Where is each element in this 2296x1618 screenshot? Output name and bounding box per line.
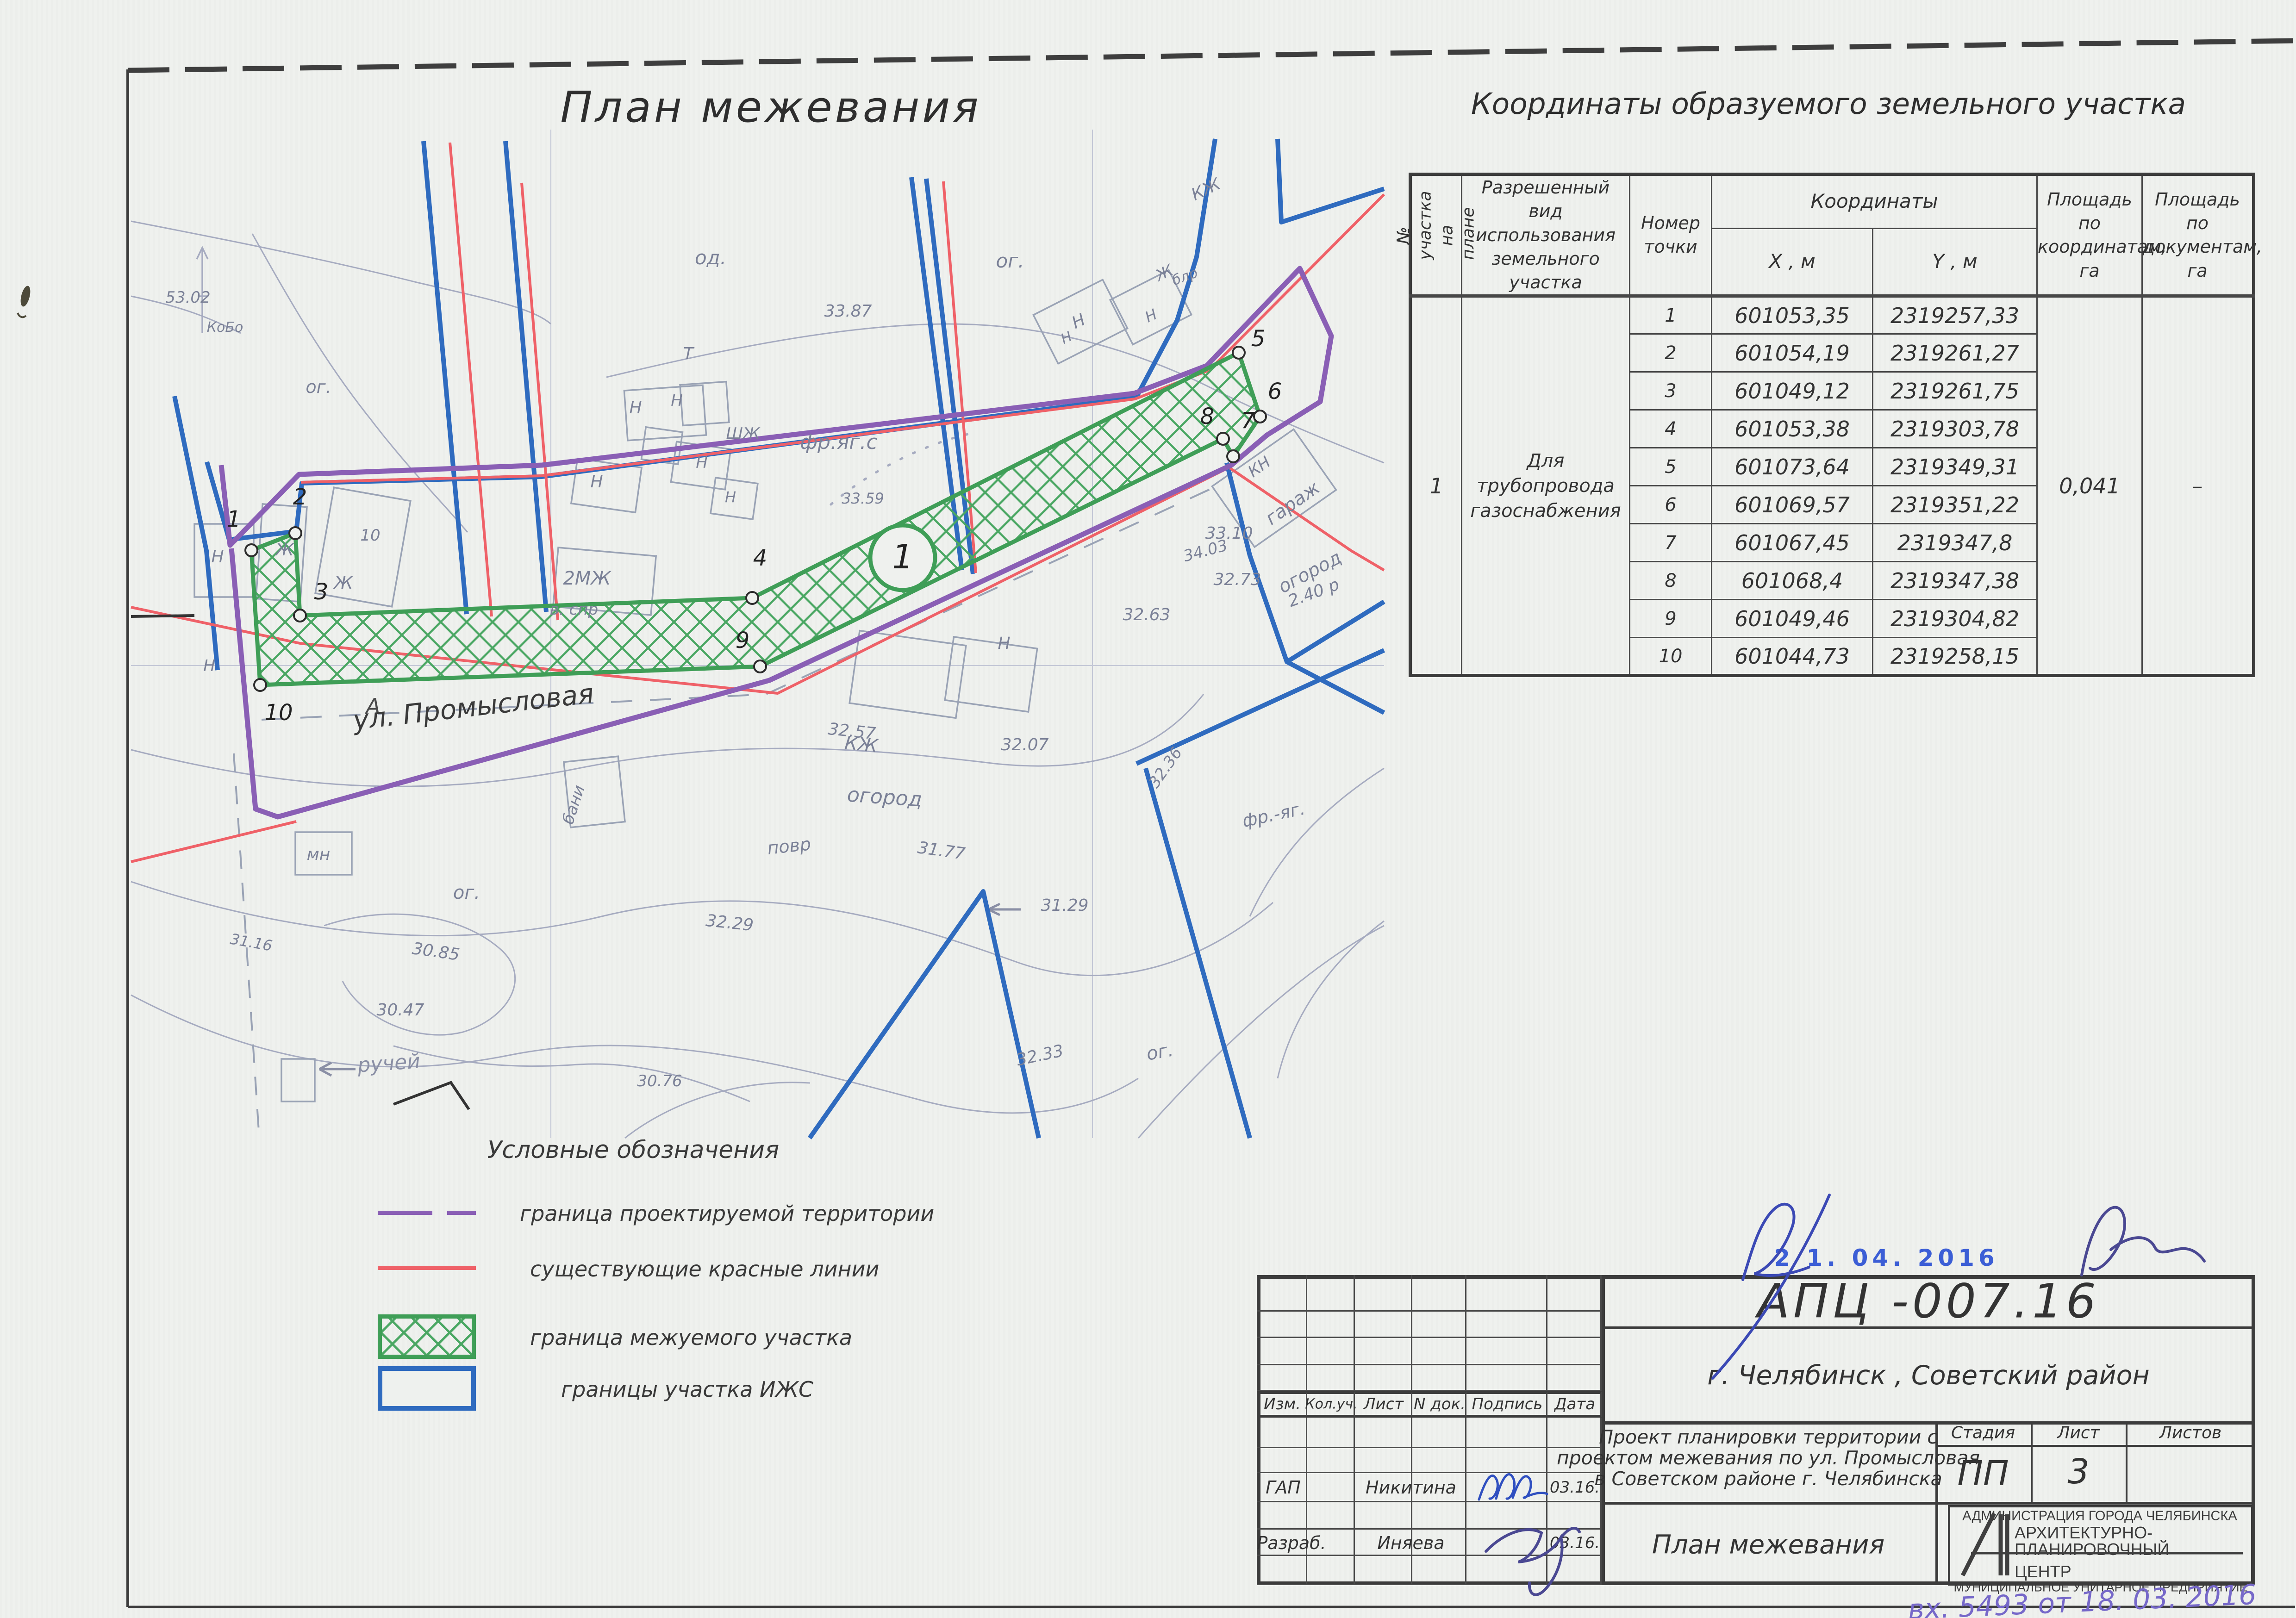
title-block-cell	[1466, 1473, 1547, 1502]
tb-divider-location	[1602, 1421, 2255, 1425]
sheet-number: 3	[2067, 1452, 2089, 1492]
map-label: ул. Промысловая	[350, 678, 595, 736]
title-block-cell	[1466, 1530, 1547, 1556]
map-label: 31.77	[917, 838, 967, 864]
map-label: КоБо	[207, 319, 243, 336]
turning-point-number: 4	[753, 545, 767, 571]
x-coordinate-cell: 601073,64	[1712, 448, 1873, 486]
legend-swatch-izhs	[378, 1366, 476, 1411]
map-label: в. спр	[550, 600, 598, 619]
map-label: 30.85	[411, 939, 461, 965]
title-block-cell	[1412, 1365, 1466, 1391]
coordinates-table: № участка на плане Разрешенный вид испол…	[1409, 173, 2252, 666]
x-coordinate-cell: 601053,35	[1712, 296, 1873, 334]
title-block-cell	[1547, 1418, 1602, 1448]
map-label: 10	[360, 526, 380, 545]
sheet: 1 53.02КоБоог.од.33.87ог.фр.яг.с33.59ТНН…	[0, 0, 2296, 1618]
coords-table-title: Координаты образуемого земельного участк…	[1471, 87, 2186, 121]
turning-point-number: 5	[1251, 326, 1266, 352]
map-label: 33.59	[842, 490, 884, 507]
usage-cell: Для трубопровода газоснабжения	[1462, 296, 1630, 676]
location: г. Челябинск , Советский район	[1707, 1360, 2149, 1391]
sheet-title: План межевания	[1652, 1530, 1884, 1560]
tb-col-data: Дата	[1554, 1395, 1595, 1413]
turning-point-number: 2	[293, 484, 307, 510]
map-label: фр.яг.с	[800, 430, 877, 454]
title-block-cell	[1355, 1556, 1412, 1585]
doc-number: АПЦ -007.16	[1757, 1274, 2100, 1329]
ink-marks	[131, 616, 469, 1109]
header-plot-no: № участка на плане	[1410, 174, 1462, 296]
title-block-cell	[1466, 1556, 1547, 1585]
legend-item-project-boundary: граница проектируемой территории	[520, 1201, 934, 1226]
map-label: 32.57	[827, 720, 877, 744]
map-title: План межевания	[560, 83, 981, 132]
title-block-cell	[1466, 1448, 1547, 1473]
title-block-cell	[1547, 1338, 1602, 1365]
map-label: 33.10	[1205, 524, 1253, 543]
tb-divider-stage-row	[1938, 1445, 2255, 1447]
legend-item-surveyed-plot: граница межуемого участка	[530, 1325, 852, 1350]
title-block-cell	[1466, 1418, 1547, 1448]
org-line3: ЦЕНТР	[2015, 1562, 2071, 1581]
tb-col-ndok: N док.	[1414, 1395, 1466, 1413]
title-block-cell	[1355, 1338, 1412, 1365]
title-block-cell	[1466, 1365, 1547, 1391]
title-block-cell	[1466, 1275, 1547, 1312]
point-number-cell: 2	[1630, 334, 1712, 372]
title-block-cell	[1257, 1275, 1307, 1312]
title-block-cell	[1307, 1448, 1355, 1473]
tb-col-izm: Изм.	[1264, 1395, 1301, 1413]
tb-name-inyaeva: Иняева	[1377, 1533, 1444, 1553]
legend-item-red-lines: существующие красные линии	[530, 1257, 879, 1282]
header-point-no: Номер точки	[1630, 174, 1712, 296]
x-coordinate-cell: 601069,57	[1712, 486, 1873, 524]
y-coordinate-cell: 2319258,15	[1873, 638, 2037, 676]
header-x: X , м	[1712, 228, 1873, 296]
project-line-1: Проект планировки территории с	[1599, 1426, 1938, 1448]
map-label: 53.02	[165, 288, 210, 307]
header-coordinates: Координаты	[1712, 174, 2037, 229]
project-boundary	[221, 268, 1331, 817]
title-block-cell	[1412, 1312, 1466, 1338]
map-label: Н	[629, 398, 642, 417]
map-label: бани	[559, 783, 589, 826]
turning-point-number: 6	[1268, 379, 1282, 404]
tb-date-razrab: 03.16.	[1550, 1534, 1600, 1552]
turning-point-number: 10	[264, 700, 293, 726]
y-coordinate-cell: 2319347,8	[1873, 524, 2037, 562]
map-label: Ж	[333, 573, 354, 593]
turning-point-marker	[289, 527, 301, 539]
map-label: Т	[683, 344, 695, 363]
turning-point-marker	[1233, 347, 1245, 359]
title-block-cell	[1547, 1312, 1602, 1338]
map-label: Н	[590, 473, 603, 492]
stage-label: Стадия	[1951, 1424, 2015, 1443]
title-block-cell	[1257, 1502, 1307, 1530]
title-block-cell	[1412, 1275, 1466, 1312]
title-block-cell	[1307, 1338, 1355, 1365]
x-coordinate-cell: 601053,38	[1712, 410, 1873, 448]
coordinates-table-body: 1Для трубопровода газоснабжения1601053,3…	[1410, 296, 2254, 676]
legend-swatch-surveyed-plot	[378, 1314, 476, 1359]
map-label: ручей	[356, 1049, 421, 1077]
point-number-cell: 4	[1630, 410, 1712, 448]
header-area-docs: Площадь по документам, га	[2142, 174, 2254, 296]
turning-point-marker	[1217, 433, 1229, 445]
header-usage: Разрешенный вид использования земельного…	[1462, 174, 1630, 296]
table-row: 1Для трубопровода газоснабжения1601053,3…	[1410, 296, 2254, 334]
title-block-cell	[1307, 1502, 1355, 1530]
map-label: Н	[211, 548, 224, 566]
map-label: ог.	[453, 882, 480, 903]
point-number-cell: 1	[1630, 296, 1712, 334]
map-label: 32.33	[1015, 1041, 1065, 1070]
turning-point-number: 3	[314, 579, 329, 605]
map-label: ог.	[1145, 1039, 1175, 1064]
title-block-cell	[1257, 1448, 1307, 1473]
legend-swatch-red-lines	[378, 1266, 476, 1270]
title-block-cell	[1547, 1502, 1602, 1530]
sheet-label: Лист	[2057, 1424, 2099, 1443]
x-coordinate-cell: 601068,4	[1712, 562, 1873, 600]
map-label: Н	[696, 454, 708, 472]
title-block-cell	[1307, 1275, 1355, 1312]
turning-point-marker	[294, 610, 306, 622]
y-coordinate-cell: 2319347,38	[1873, 562, 2037, 600]
tb-role-razrab: Разраб.	[1257, 1533, 1326, 1553]
tb-name-nikitina: Никитина	[1366, 1477, 1456, 1498]
y-coordinate-cell: 2319351,22	[1873, 486, 2037, 524]
map-label: 31.29	[1041, 896, 1088, 915]
map-label: 30.76	[637, 1072, 682, 1090]
map-label: КН	[1245, 453, 1274, 481]
ink-blot-tail	[18, 313, 26, 317]
x-coordinate-cell: 601044,73	[1712, 638, 1873, 676]
turning-point-marker	[254, 679, 266, 691]
title-block-cell	[1257, 1556, 1307, 1585]
title-block-cell	[1355, 1275, 1412, 1312]
map-label: ог.	[306, 377, 331, 397]
area-by-coords-cell: 0,041	[2037, 296, 2142, 676]
org-line2: ПЛАНИРОВОЧНЫЙ	[2015, 1540, 2169, 1559]
map-label: Н	[671, 392, 683, 410]
tb-divider-project	[1602, 1502, 2255, 1505]
legend-swatch-project-boundary	[378, 1211, 476, 1215]
project-line-2: проектом межевания по ул. Промысловая	[1557, 1447, 1980, 1469]
title-block-cell	[1412, 1338, 1466, 1365]
turning-point-number: 9	[736, 628, 750, 653]
tb-col-list: Лист	[1364, 1395, 1404, 1413]
title-block-cell	[1307, 1556, 1355, 1585]
title-block-cell	[1412, 1556, 1466, 1585]
title-block-cell	[1307, 1418, 1355, 1448]
tb-date-gap: 03.16.	[1550, 1478, 1600, 1497]
org-admin: АДМИНИСТРАЦИЯ ГОРОДА ЧЕЛЯБИНСКА	[1962, 1509, 2237, 1524]
y-coordinate-cell: 2319304,82	[1873, 600, 2037, 638]
plot-no-cell: 1	[1410, 296, 1462, 676]
title-block-cell	[1257, 1312, 1307, 1338]
map-label: Н	[1142, 305, 1160, 326]
map-label: фр.-яг.	[1241, 798, 1307, 831]
title-block-cell	[1257, 1365, 1307, 1391]
point-number-cell: 5	[1630, 448, 1712, 486]
title-block-cell	[1412, 1448, 1466, 1473]
title-block-cell	[1257, 1338, 1307, 1365]
x-coordinate-cell: 601054,19	[1712, 334, 1873, 372]
title-block-cell	[1355, 1312, 1412, 1338]
title-block-cell	[1547, 1556, 1602, 1585]
x-coordinate-cell: 601067,45	[1712, 524, 1873, 562]
title-block-cell	[1412, 1418, 1466, 1448]
title-block-cell	[1257, 1418, 1307, 1448]
title-block-cell	[1307, 1473, 1355, 1502]
turning-point-marker	[746, 592, 758, 604]
map-label: 32.36	[1145, 744, 1186, 791]
ink-blot	[19, 285, 32, 308]
turning-point-marker	[245, 544, 257, 556]
title-block-cell	[1466, 1312, 1547, 1338]
title-block-cell	[1466, 1338, 1547, 1365]
map-label: Н	[1058, 329, 1074, 348]
x-coordinate-cell: 601049,12	[1712, 372, 1873, 410]
title-block-cell	[1547, 1275, 1602, 1312]
project-line-3: в Советском районе г. Челябинска	[1594, 1468, 1942, 1490]
turning-point-number: 8	[1200, 404, 1215, 429]
tb-role-gap: ГАП	[1266, 1477, 1301, 1498]
title-block-cell	[1307, 1365, 1355, 1391]
map-label: 31.16	[229, 930, 274, 955]
map-label: ШЖ	[726, 424, 761, 443]
y-coordinate-cell: 2319303,78	[1873, 410, 2037, 448]
map-label: 32.29	[705, 911, 755, 935]
turning-point-number: 7	[1241, 408, 1255, 434]
legend-item-izhs: границы участка ИЖС	[561, 1377, 813, 1402]
map-label: Н	[1069, 310, 1088, 333]
tb-col-podpis: Подпись	[1472, 1395, 1543, 1413]
area-by-docs-cell: –	[2142, 296, 2254, 676]
legend-title: Условные обозначения	[487, 1137, 780, 1164]
map-label: Ж	[275, 541, 295, 560]
sheets-label: Листов	[2159, 1424, 2221, 1443]
map-label: од.	[695, 246, 726, 269]
map-label: 32.07	[1001, 735, 1048, 754]
point-number-cell: 6	[1630, 486, 1712, 524]
title-block-cell	[1547, 1365, 1602, 1391]
turning-point-marker	[1254, 411, 1266, 423]
turning-point-number: 1	[227, 506, 241, 532]
map-label: Н	[998, 634, 1010, 653]
map-label: гараж	[1262, 477, 1324, 529]
y-coordinate-cell: 2319261,75	[1873, 372, 2037, 410]
header-y: Y , м	[1873, 228, 2037, 296]
point-number-cell: 10	[1630, 638, 1712, 676]
plot-number: 1	[892, 537, 913, 576]
map-label: 32.73	[1213, 570, 1261, 589]
map-label: ог.	[996, 249, 1024, 272]
point-number-cell: 3	[1630, 372, 1712, 410]
title-block-cell	[1466, 1502, 1547, 1530]
map-label: повр	[766, 834, 812, 859]
title-block-cell	[1412, 1502, 1466, 1530]
map-label: 32.63	[1123, 605, 1170, 624]
map-label: огород	[846, 783, 923, 811]
map-label: 30.47	[376, 1001, 424, 1020]
stage-value: ПП	[1957, 1454, 2009, 1494]
date-stamp: 2 1. 04. 2016	[1774, 1245, 1999, 1271]
header-area-coords: Площадь по координатам, га	[2037, 174, 2142, 296]
map-label: 2МЖ	[563, 568, 611, 589]
map-label: Н	[203, 657, 215, 675]
title-block-cell	[1355, 1502, 1412, 1530]
title-block-cell	[1355, 1365, 1412, 1391]
point-number-cell: 9	[1630, 600, 1712, 638]
y-coordinate-cell: 2319261,27	[1873, 334, 2037, 372]
map-label: Н	[725, 488, 736, 506]
title-block-cell	[1307, 1312, 1355, 1338]
tb-divider-list-col	[2126, 1421, 2128, 1502]
turning-point-marker	[1227, 450, 1239, 462]
point-number-cell: 7	[1630, 524, 1712, 562]
title-block-cell	[1355, 1418, 1412, 1448]
point-number-cell: 8	[1630, 562, 1712, 600]
turning-point-marker	[754, 660, 766, 672]
y-coordinate-cell: 2319257,33	[1873, 296, 2037, 334]
x-coordinate-cell: 601049,46	[1712, 600, 1873, 638]
map-label: 33.87	[824, 302, 872, 321]
tb-divider-stage-col	[2031, 1421, 2033, 1502]
tb-col-koluch: Кол.уч.	[1305, 1396, 1357, 1413]
y-coordinate-cell: 2319349,31	[1873, 448, 2037, 486]
map-label: мн	[307, 845, 331, 864]
title-block-cell	[1355, 1448, 1412, 1473]
